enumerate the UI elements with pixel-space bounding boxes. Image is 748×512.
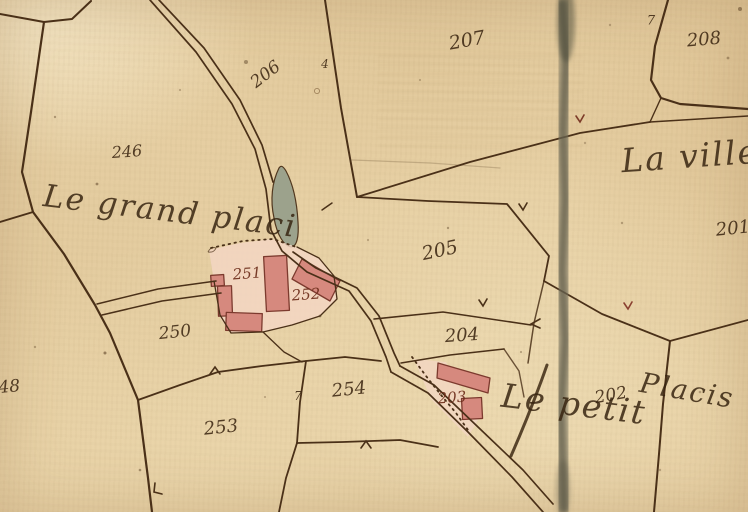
building-251-main (264, 255, 290, 311)
parcel-label-204: 204 (444, 326, 480, 346)
place-name-la-ville: La ville (620, 135, 748, 178)
parcel-label-203: 203 (437, 390, 467, 407)
fold-crease (556, 0, 575, 512)
building-251-south (226, 312, 263, 331)
survey-mark-4-near-206: 4 (321, 58, 329, 70)
parcel-label-208: 208 (686, 30, 722, 51)
cadastral-map: 206 207 208 7 246 201 205 204 202 203 25… (0, 0, 748, 512)
parcel-label-248: 248 (0, 378, 21, 398)
survey-mark-7-near-254: 7 (294, 390, 302, 402)
survey-mark-7-near-208: 7 (647, 15, 655, 28)
parcel-boundaries (0, 0, 748, 512)
parcel-label-253: 253 (203, 417, 239, 438)
parcel-label-201: 201 (715, 218, 748, 239)
parcel-label-251: 251 (232, 266, 262, 283)
map-drawing (0, 0, 748, 512)
parcel-label-246: 246 (111, 143, 143, 161)
building-251-small (211, 275, 225, 287)
parcel-label-250: 250 (158, 323, 192, 343)
parcel-label-254: 254 (331, 379, 367, 400)
parcel-label-252: 252 (291, 287, 321, 304)
